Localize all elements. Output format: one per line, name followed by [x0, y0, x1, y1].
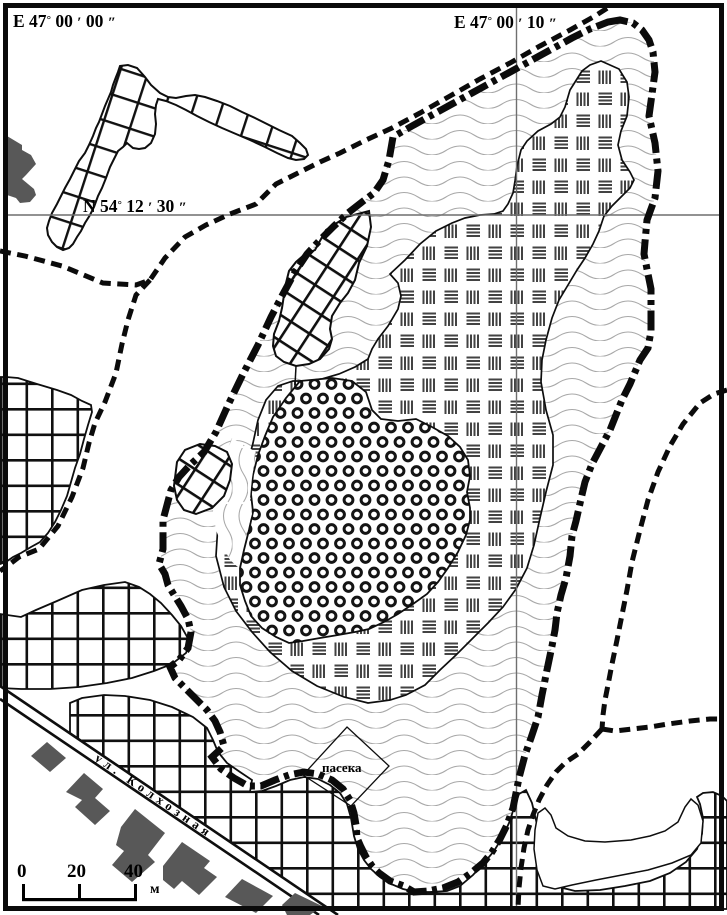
svg-text:20: 20	[67, 861, 86, 882]
svg-text:E 47° 00 ′ 10 ″: E 47° 00 ′ 10 ″	[454, 12, 557, 32]
svg-text:пасека: пасека	[322, 760, 362, 775]
svg-text:40: 40	[124, 861, 143, 882]
svg-text:м: м	[150, 882, 160, 897]
svg-text:E 47° 00 ′ 00 ″: E 47° 00 ′ 00 ″	[13, 11, 116, 31]
svg-text:N 54° 12 ′ 30 ″: N 54° 12 ′ 30 ″	[83, 196, 187, 216]
svg-text:0: 0	[17, 861, 27, 882]
